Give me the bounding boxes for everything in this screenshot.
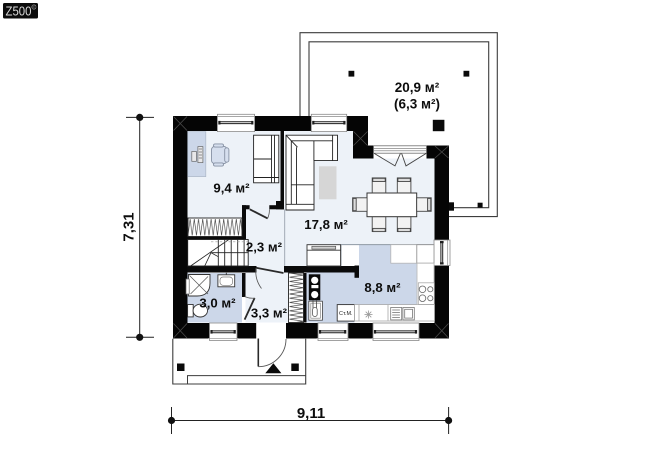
svg-text:9,4 м²: 9,4 м² [213, 180, 250, 195]
svg-text:8,8 м²: 8,8 м² [364, 280, 401, 295]
svg-text:9,11: 9,11 [297, 405, 325, 422]
svg-text:(6,3 м²): (6,3 м²) [394, 97, 440, 112]
svg-text:3,0 м²: 3,0 м² [199, 296, 236, 311]
svg-text:7,31: 7,31 [121, 212, 138, 241]
svg-text:Ст.М.: Ст.М. [339, 311, 353, 317]
svg-text:20,9 м²: 20,9 м² [395, 80, 440, 95]
svg-text:Z500: Z500 [6, 4, 32, 18]
svg-text:3,3 м²: 3,3 м² [251, 306, 288, 321]
svg-text:2,3 м²: 2,3 м² [246, 239, 283, 254]
svg-text:17,8 м²: 17,8 м² [304, 217, 348, 232]
svg-text:©: © [32, 4, 37, 12]
